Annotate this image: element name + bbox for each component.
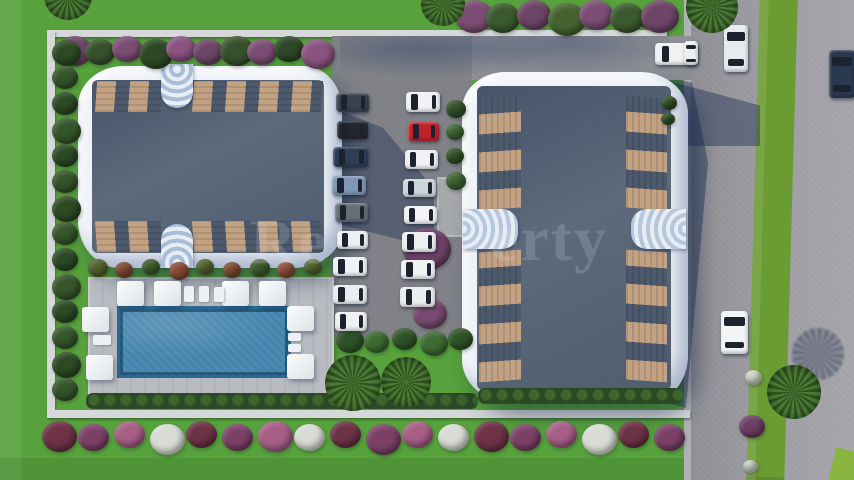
car-rear-window — [359, 260, 363, 273]
bush-left-hedge-column — [52, 170, 78, 193]
car — [401, 260, 435, 279]
car-rear-window — [359, 150, 364, 164]
car — [404, 206, 437, 224]
pool-umbrella — [86, 355, 113, 380]
car-windshield — [662, 46, 670, 63]
car — [337, 231, 368, 249]
car-windshield — [407, 234, 413, 249]
bush-top-inside-purple — [247, 39, 277, 65]
swimming-pool — [117, 306, 291, 378]
bush-flower-row-bottom — [42, 421, 77, 452]
car-windshield — [408, 181, 414, 195]
balconies-left-top-a — [95, 81, 163, 112]
car — [402, 232, 436, 252]
bush-top-inside-purple — [85, 39, 115, 65]
palm-tree — [767, 365, 821, 419]
bush-left-hedge-column — [52, 326, 78, 349]
bush-parking-right-greens — [446, 124, 464, 140]
balconies-right-east-b — [626, 250, 667, 383]
car — [336, 93, 369, 112]
bush-top-outer — [641, 0, 679, 33]
bush-bottom-mid-trees — [420, 331, 448, 356]
watermark-fragment-right: erty — [490, 202, 608, 276]
car-rear-window — [428, 235, 432, 249]
pool-umbrella — [222, 281, 249, 306]
bush-top-inside-purple — [112, 36, 142, 62]
bush-building-topright — [661, 113, 675, 125]
bush-left-hedge-column — [52, 378, 78, 401]
car-rear-window — [428, 182, 432, 194]
bush-flower-row-bottom — [114, 421, 145, 448]
bush-south-garden-strip — [196, 259, 214, 275]
bush-flower-row-bottom — [438, 424, 469, 451]
bush-flower-row-bottom — [546, 421, 577, 448]
bush-flower-row-bottom — [222, 424, 253, 451]
car-rear-window — [359, 315, 363, 328]
bush-bottom-mid-trees — [364, 331, 389, 353]
pool-umbrella — [82, 307, 109, 332]
car-windshield — [338, 287, 344, 301]
car — [332, 176, 366, 195]
car-rear-window — [427, 263, 431, 276]
car-windshield — [832, 57, 852, 66]
car-windshield — [340, 314, 346, 328]
car-rear-window — [833, 85, 851, 92]
car-rear-window — [360, 124, 364, 136]
bush-flower-row-bottom — [78, 424, 109, 451]
bush-top-outer — [610, 3, 644, 33]
bush-left-hedge-column — [52, 40, 81, 66]
balconies-left-top-b — [192, 81, 323, 112]
car — [335, 203, 368, 222]
bush-flower-row-bottom — [582, 424, 617, 455]
car-windshield — [724, 317, 745, 325]
car-rear-window — [429, 209, 433, 221]
car-rear-window — [426, 290, 431, 304]
car — [333, 257, 367, 276]
car-windshield — [342, 123, 348, 137]
bush — [745, 370, 762, 385]
bush-top-inside-purple — [166, 36, 196, 62]
bush — [739, 415, 765, 438]
bush-bottom-mid-trees — [448, 328, 473, 350]
bush-flower-row-bottom — [186, 421, 217, 448]
pool-umbrella — [154, 281, 181, 306]
car-windshield — [340, 205, 346, 219]
car-windshield — [339, 149, 345, 164]
car-windshield — [337, 178, 343, 192]
car — [406, 92, 440, 112]
bush-south-garden-strip — [142, 259, 160, 275]
car-rear-window — [359, 288, 363, 301]
car-windshield — [406, 262, 412, 276]
bush — [743, 460, 758, 473]
bush-top-outer — [517, 0, 551, 30]
car — [684, 41, 698, 65]
hedge-row-right-building — [478, 388, 683, 404]
car-rear-window — [358, 179, 362, 192]
bush-top-inside-purple — [301, 39, 335, 69]
car-rear-window — [432, 95, 436, 109]
bush-south-garden-strip — [88, 259, 108, 277]
sun-lounger — [288, 344, 301, 352]
bush-flower-row-bottom — [294, 424, 325, 451]
bush-parking-right-greens — [446, 148, 464, 164]
entrance-notch-east — [631, 209, 686, 249]
car-rear-window — [430, 153, 434, 166]
car-windshield — [410, 152, 416, 166]
car — [335, 312, 367, 331]
stair-canopy-top — [161, 64, 193, 108]
balconies-right-west-a — [479, 96, 521, 211]
car-windshield — [341, 95, 347, 109]
bush-flower-row-bottom — [654, 424, 685, 451]
sun-lounger — [199, 286, 209, 302]
car-rear-window — [431, 125, 435, 138]
car-rear-window — [360, 206, 364, 219]
bush-flower-row-bottom — [150, 424, 185, 455]
bush-left-hedge-column — [52, 274, 81, 300]
bush-flower-row-bottom — [618, 421, 649, 448]
car — [405, 150, 438, 169]
car-rear-window — [361, 96, 365, 109]
bush-flower-row-bottom — [366, 424, 401, 455]
bush-bottom-mid-trees — [336, 328, 364, 353]
bush-left-hedge-column — [52, 196, 81, 222]
sun-lounger — [93, 335, 111, 345]
boundary-wall-bottom — [47, 410, 690, 418]
bush-flower-row-bottom — [402, 421, 433, 448]
bush-flower-row-bottom — [474, 421, 509, 452]
car-rear-window — [728, 59, 745, 66]
bush-left-hedge-column — [52, 300, 78, 323]
car-windshield — [411, 94, 417, 109]
car-windshield — [342, 233, 348, 247]
car — [829, 50, 854, 98]
car-windshield — [406, 289, 412, 304]
car-rear-window — [686, 59, 696, 62]
car-windshield — [413, 124, 419, 138]
watermark-fragment-left: Re — [250, 205, 329, 279]
car-windshield — [409, 208, 415, 222]
bush-bottom-mid-trees — [392, 328, 417, 350]
car-rear-window — [360, 234, 364, 246]
bush-parking-right-greens — [446, 172, 466, 190]
car-windshield — [727, 32, 745, 41]
sun-lounger — [184, 286, 194, 302]
car — [721, 311, 748, 354]
scene-stage: Re erty — [0, 0, 854, 480]
car-windshield — [338, 259, 344, 273]
car — [337, 121, 368, 139]
bush-flower-row-bottom — [510, 424, 541, 451]
car — [333, 285, 367, 304]
bush-top-outer — [579, 0, 613, 30]
bush-south-garden-strip — [223, 262, 241, 278]
bush-left-hedge-column — [52, 118, 81, 144]
bush-left-hedge-column — [52, 222, 78, 245]
balconies-left-bottom-a — [95, 221, 163, 252]
bush-left-hedge-column — [52, 352, 81, 378]
sun-lounger — [288, 333, 301, 341]
car — [408, 122, 439, 141]
pool-umbrella — [259, 281, 286, 306]
bush-flower-row-bottom — [330, 421, 361, 448]
bush-south-garden-strip — [169, 262, 189, 280]
bush-left-hedge-column — [52, 92, 78, 115]
bush-left-hedge-column — [52, 66, 78, 89]
car — [400, 287, 435, 307]
bush-flower-row-bottom — [258, 421, 293, 452]
bush-top-inside-purple — [193, 39, 223, 65]
bush-top-inside-purple — [274, 36, 304, 62]
bush-left-hedge-column — [52, 144, 78, 167]
pool-umbrella — [287, 306, 314, 331]
bush-building-topright — [661, 96, 677, 110]
car-rear-window — [725, 342, 744, 348]
car — [724, 25, 748, 72]
bush-south-garden-strip — [115, 262, 133, 278]
bush-parking-right-greens — [446, 100, 466, 118]
car — [333, 147, 368, 167]
pool-umbrella — [117, 281, 144, 306]
balconies-right-east-a — [626, 96, 667, 211]
car — [403, 179, 436, 197]
pool-umbrella — [287, 354, 314, 379]
bush-left-hedge-column — [52, 248, 78, 271]
car-windshield — [686, 45, 697, 50]
bush-top-outer — [486, 3, 520, 33]
sun-lounger — [214, 287, 224, 302]
